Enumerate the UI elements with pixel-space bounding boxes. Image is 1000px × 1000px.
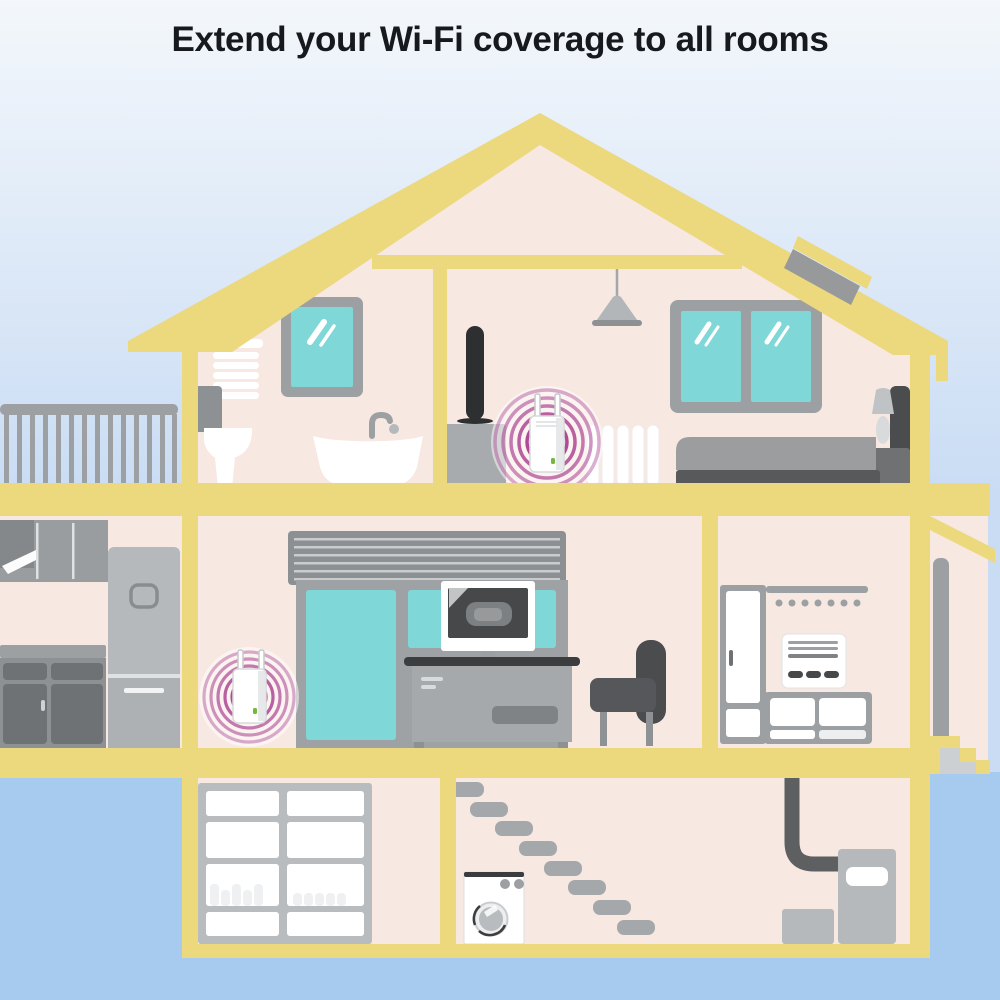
mattress xyxy=(676,437,876,470)
window-shutter-box xyxy=(288,531,566,585)
wall-heater xyxy=(782,634,846,688)
railing-top-bar xyxy=(0,404,178,415)
wardrobe xyxy=(720,585,766,744)
wall-left xyxy=(182,346,198,958)
upper-cabinets xyxy=(0,520,108,582)
desk-drawer xyxy=(492,706,558,724)
floor-basement xyxy=(182,944,930,958)
bedroom-window xyxy=(670,300,822,413)
bathroom-window xyxy=(281,297,363,397)
wall-hallway xyxy=(702,516,718,750)
storage-box xyxy=(782,909,834,944)
downspout xyxy=(933,558,949,742)
wifi-extender-upstairs xyxy=(491,386,603,498)
floor-speaker xyxy=(466,326,484,420)
shoe-cabinet xyxy=(764,692,872,744)
kitchen-counter xyxy=(0,645,106,748)
boiler xyxy=(838,849,896,944)
speaker-base xyxy=(457,418,493,424)
fridge xyxy=(108,547,180,748)
storage-shelves xyxy=(198,783,372,944)
balcony-railing xyxy=(0,404,178,486)
floor-ground xyxy=(0,748,930,778)
floor-upper xyxy=(0,483,990,516)
wall-right xyxy=(910,350,930,958)
faucet-knob xyxy=(389,424,399,434)
desk-top xyxy=(404,657,580,666)
washing-machine xyxy=(464,872,524,944)
wifi-extender-downstairs xyxy=(199,647,299,747)
house-cutaway-illustration xyxy=(0,0,1000,1000)
tv-stand xyxy=(481,651,495,657)
wall-bathroom xyxy=(433,258,447,490)
tv xyxy=(441,581,535,657)
illustration-canvas: Extend your Wi-Fi coverage to all rooms xyxy=(0,0,1000,1000)
desk xyxy=(404,657,580,748)
ceiling-beam xyxy=(372,255,742,269)
wall-basement xyxy=(440,778,456,946)
